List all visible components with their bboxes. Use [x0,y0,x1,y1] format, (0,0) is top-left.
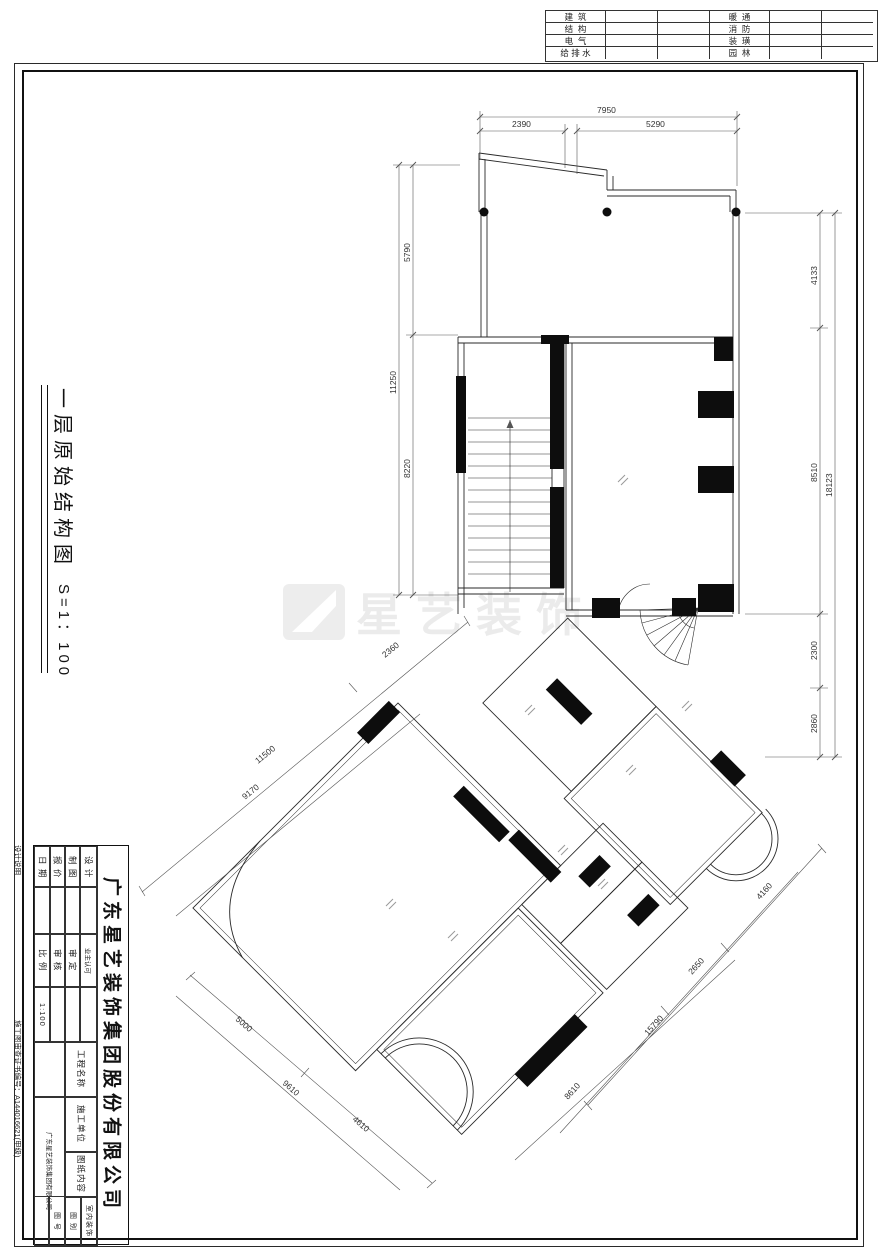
room-level-marker-icon [598,879,608,889]
room-level-marker-icon [558,845,568,855]
dim-label: 11250 [388,371,398,394]
dim-label: 2300 [809,641,819,660]
dim-label: 5790 [402,243,412,262]
watermark-text: 星艺装饰 [356,589,596,641]
column-dot [480,208,489,217]
dim-label: 8220 [402,459,412,478]
dim-label: 9170 [240,782,261,802]
room-level-markers [386,475,692,941]
stair-arrow-icon [507,420,514,428]
dim-label: 2650 [686,955,706,976]
dim-label: 8610 [562,1080,582,1101]
room-level-marker-icon [386,899,396,909]
balcony-wall [479,153,736,212]
dim-label: 8510 [809,463,819,482]
dim-label: 2860 [809,714,819,733]
room-level-marker-icon [626,765,636,775]
floor-plan: 星艺装饰 [0,0,878,1254]
dim-label: 4610 [351,1114,372,1134]
room-level-marker-icon [618,475,628,485]
dim-label: 2360 [380,640,401,660]
door-swing-arc [618,584,650,616]
column-dot [603,208,612,217]
dim-label: 18123 [824,473,834,497]
watermark: 星艺装饰 [283,584,596,641]
rotated-wing [187,559,802,1174]
structural-walls-upper [456,208,741,619]
dim-label: 4133 [809,266,819,285]
plan-walls [458,153,739,665]
bay-window-arcs [381,1016,496,1131]
bay-arc-wall [706,809,795,898]
column-dot [732,208,741,217]
room-level-marker-icon [448,931,458,941]
dim-label: 9610 [281,1078,302,1098]
room-level-marker-icon [682,701,692,711]
dim-label: 5000 [234,1014,255,1034]
curved-stair [640,608,698,665]
dim-label: 2390 [512,119,531,129]
drawing-sheet: 建 筑 暖 通 结 构 消 防 电 气 装 璜 给 排 水 园 林 一层原始结构… [0,0,878,1254]
dim-label: 7950 [597,105,616,115]
curved-wall [193,841,310,958]
dim-label: 4160 [754,880,774,901]
dim-label: 5290 [646,119,665,129]
dim-label: 11500 [253,743,277,765]
room-level-marker-icon [525,705,535,715]
